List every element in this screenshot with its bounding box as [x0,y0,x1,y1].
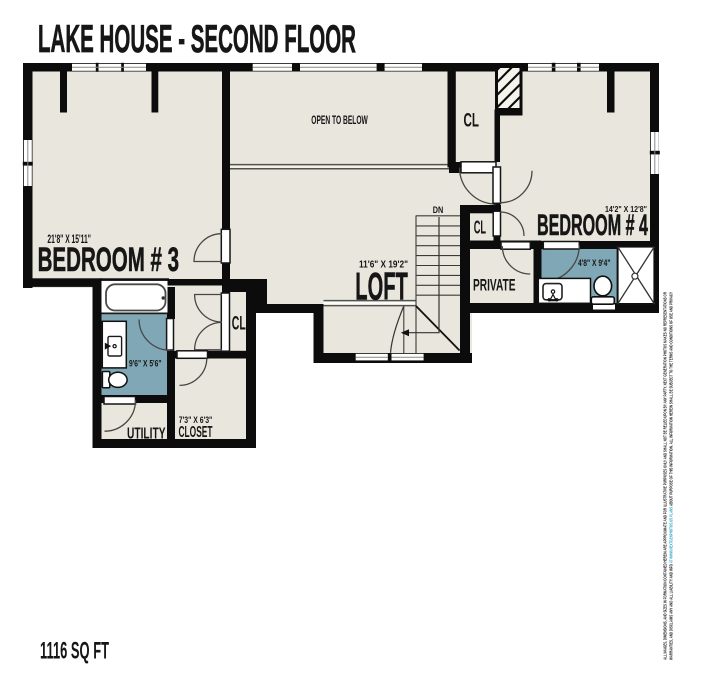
svg-text:CLOSET: CLOSET [179,424,213,441]
svg-text:UTILITY: UTILITY [127,426,166,443]
svg-text:PRIVATE: PRIVATE [473,276,516,295]
svg-text:LOFT: LOFT [355,266,408,309]
svg-text:4'8" X 9'4": 4'8" X 9'4" [578,258,611,268]
svg-text:DN: DN [433,205,444,216]
svg-text:CL: CL [474,218,486,238]
svg-text:OPEN TO BELOW: OPEN TO BELOW [311,115,368,127]
svg-text:1116 SQ FT: 1116 SQ FT [40,638,109,665]
svg-text:LAKE HOUSE - SECOND FLOOR: LAKE HOUSE - SECOND FLOOR [38,18,356,61]
svg-text:BEDROOM # 3: BEDROOM # 3 [38,241,180,279]
svg-text:CL: CL [232,313,246,335]
svg-text:9'6" X 5'6": 9'6" X 5'6" [129,359,162,369]
svg-text:WARRANTIES, AND DISCLAIMS ANY: WARRANTIES, AND DISCLAIMS ANY AND ALL LI… [669,292,674,660]
svg-text:BEDROOM # 4: BEDROOM # 4 [537,209,648,242]
svg-text:ALL IMAGES, DIMENSIONS, AND SI: ALL IMAGES, DIMENSIONS, AND SIZES IN FOR… [663,292,668,660]
svg-text:CL: CL [464,109,480,131]
